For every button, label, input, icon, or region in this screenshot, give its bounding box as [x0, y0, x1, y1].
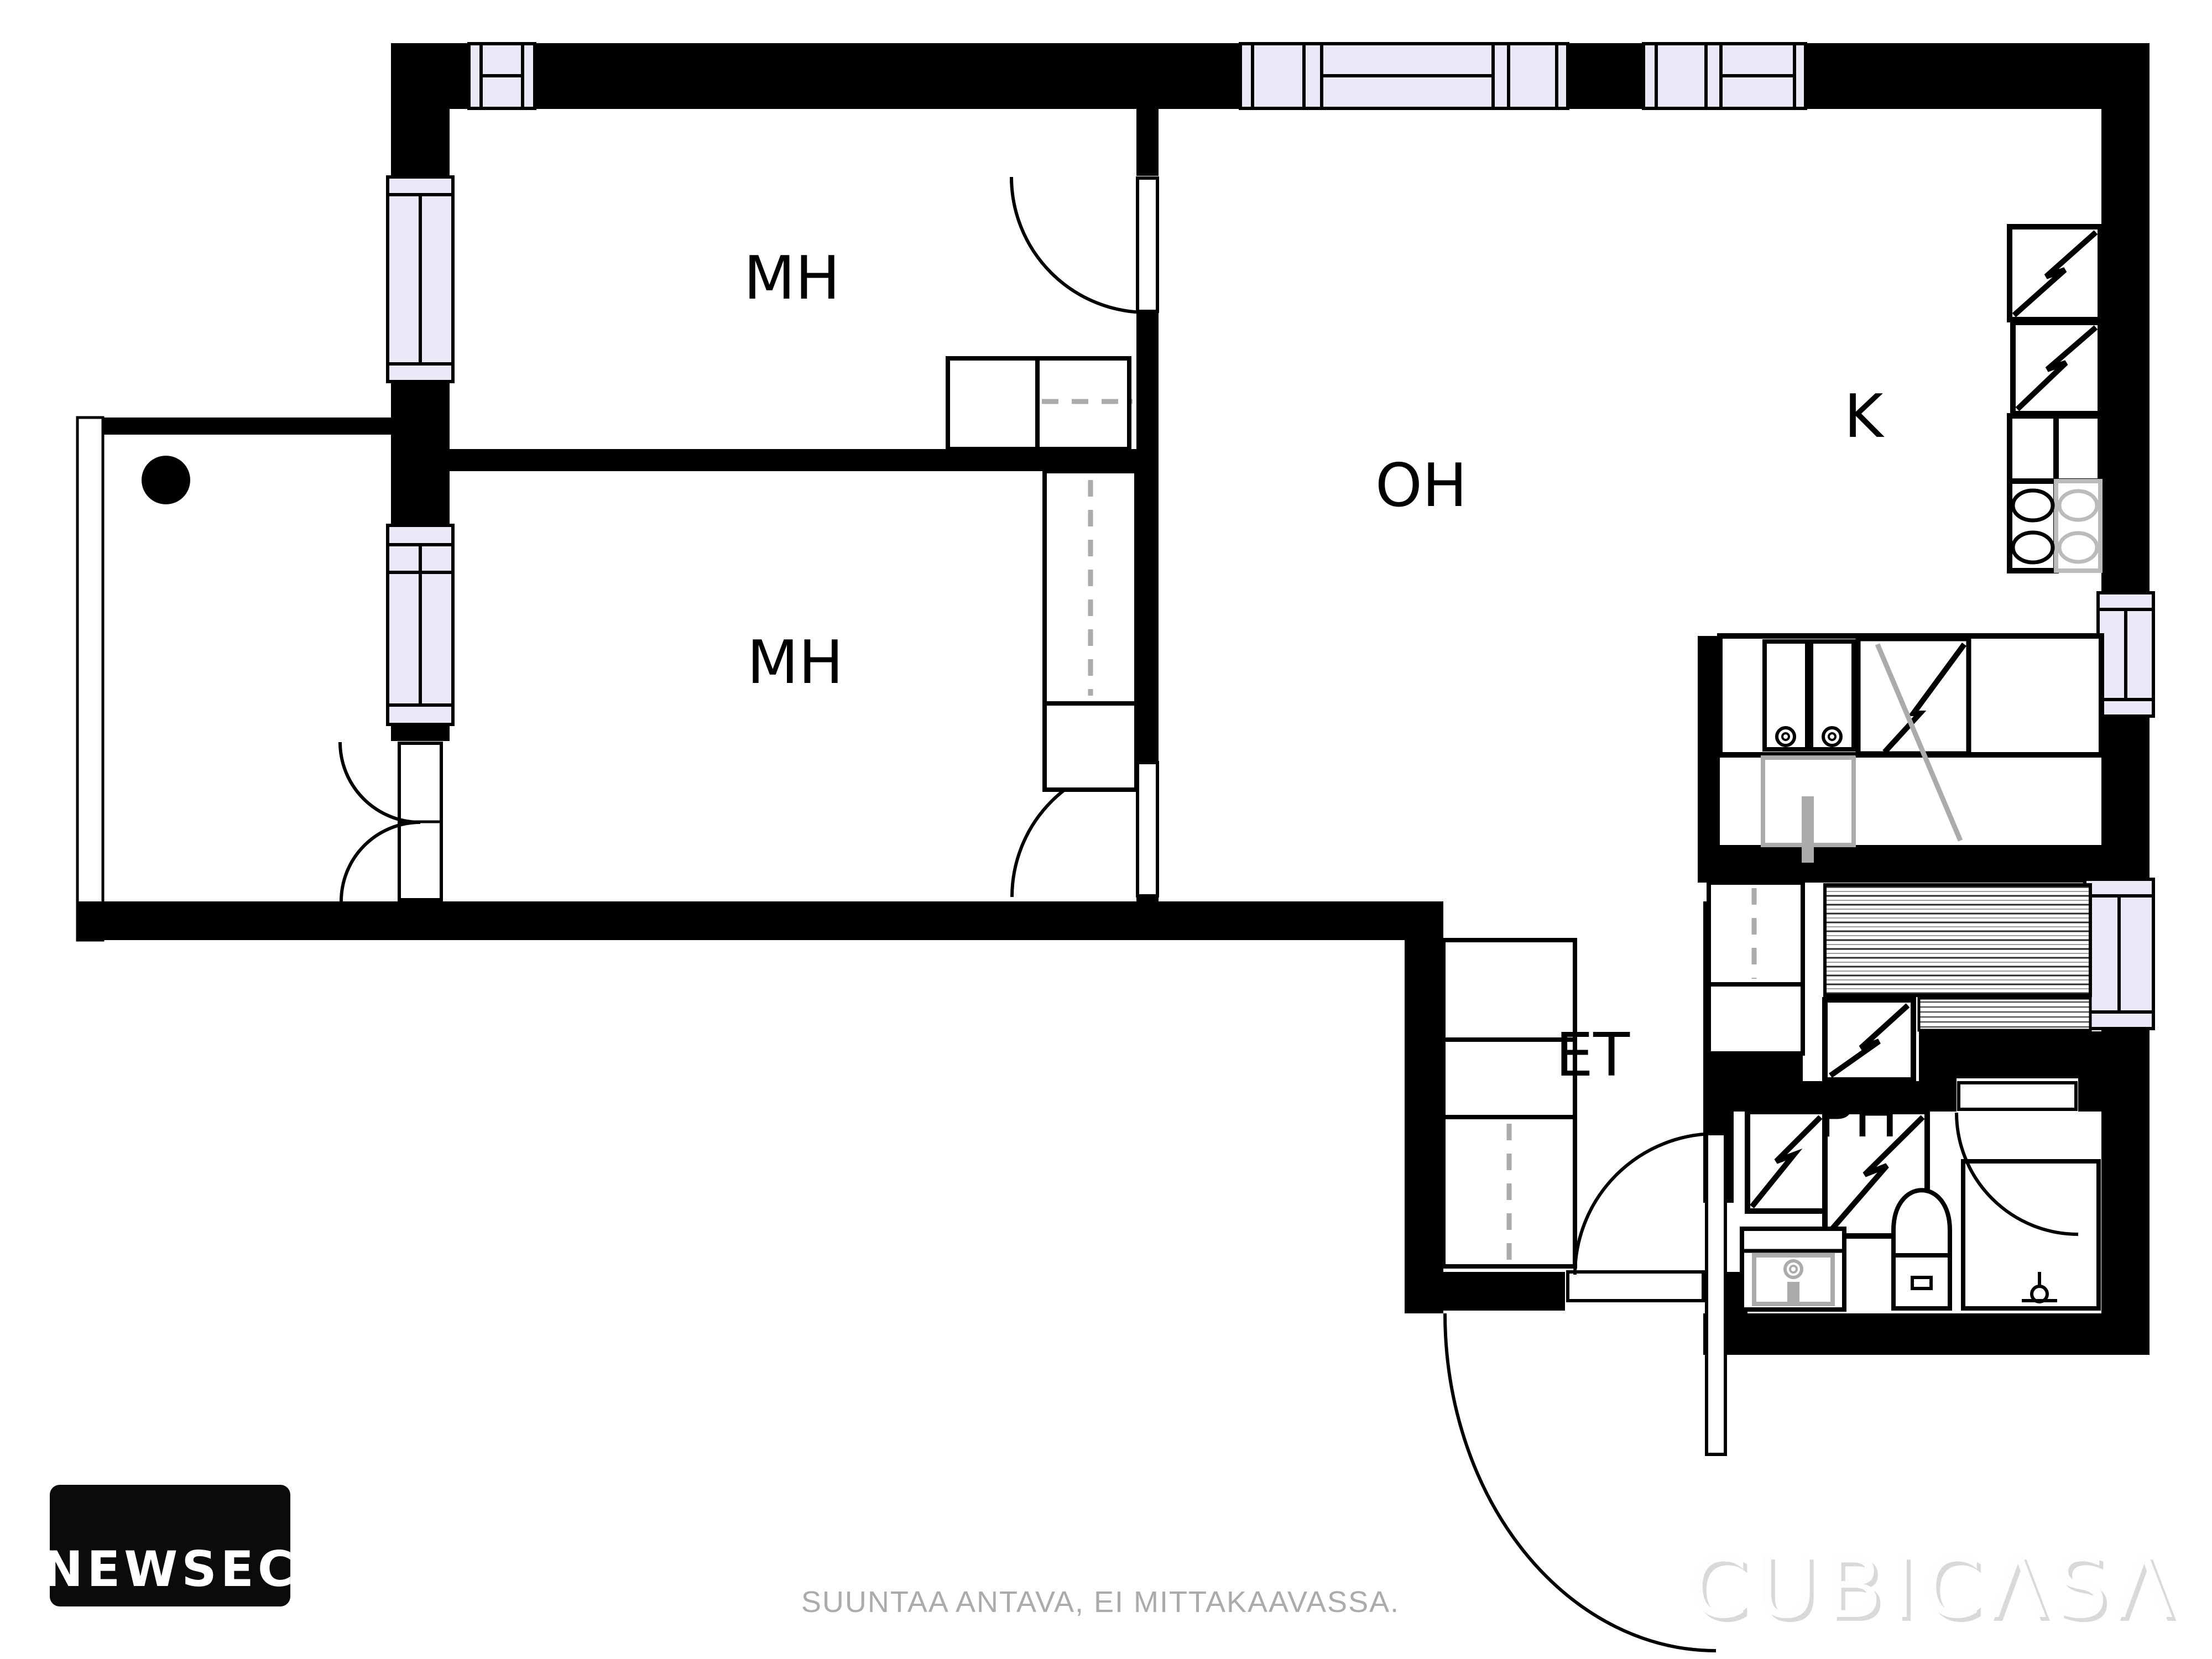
- wardrobe: [1045, 703, 1136, 790]
- wall-below-kitchen-counter: [1698, 845, 2101, 883]
- window-kitchen-top: [1644, 44, 1806, 108]
- door-leaf-open: [1707, 1134, 1725, 1454]
- disclaimer-text: SUUNTAA ANTAVA, EI MITTAKAAVASSA.: [801, 1585, 1400, 1619]
- wall-between-bedrooms: [450, 449, 1159, 471]
- window-bedroom2-left: [388, 525, 453, 724]
- floorplan-svg: MH MH OH K ET PH NEWSEC SUUNTAA ANTAVA, …: [0, 0, 2212, 1659]
- floorplan-page: MH MH OH K ET PH NEWSEC SUUNTAA ANTAVA, …: [0, 0, 2212, 1659]
- wall-bathroom-south: [1703, 1313, 2150, 1355]
- drying-rack-small: [1919, 998, 2090, 1030]
- window-bedroom1-left: [388, 177, 453, 382]
- wall-entry-west: [1405, 901, 1443, 1313]
- bathroom-sink: [1742, 1229, 1844, 1310]
- toilet: [1893, 1190, 1950, 1308]
- stove: [2010, 481, 2100, 571]
- room-label-bedroom-2: MH: [747, 628, 843, 697]
- window-bedroom1-top: [469, 44, 535, 108]
- cubicasa-watermark-text: CUBICΛSΛ: [1689, 1539, 2180, 1637]
- wall-south-bedrooms: [77, 901, 1443, 940]
- drying-rack: [1825, 885, 2090, 995]
- wardrobe: [948, 358, 1037, 449]
- room-label-bedroom-1: MH: [744, 244, 840, 313]
- door-leaf: [1568, 1272, 1703, 1301]
- kitchen-cabinet: [2056, 416, 2100, 481]
- window-kitchen-right: [2098, 593, 2153, 716]
- balcony-glass-rail: [77, 418, 103, 940]
- cubicasa-watermark: CUBICΛSΛ CUBICΛSΛ: [1689, 1539, 2184, 1641]
- window-utility-right: [2085, 879, 2153, 1029]
- room-label-living-room: OH: [1375, 451, 1467, 520]
- newsec-logo: NEWSEC: [43, 1485, 298, 1606]
- room-label-entry-hall: ET: [1556, 1021, 1630, 1090]
- room-label-bathroom: PH: [1818, 1082, 1898, 1151]
- floor-drain-icon: [142, 456, 190, 504]
- background: [0, 0, 2212, 1659]
- kitchen-cabinet: [2010, 416, 2056, 481]
- closet: [1709, 984, 1803, 1053]
- balcony-top-rail: [77, 418, 393, 435]
- door-leaf: [1959, 1083, 2076, 1109]
- wall-entry-south: [1405, 1272, 1568, 1311]
- door-leaf: [1138, 178, 1157, 311]
- window-living-top-large: [1240, 44, 1568, 108]
- room-label-kitchen: K: [1844, 382, 1885, 451]
- newsec-logo-text: NEWSEC: [43, 1541, 298, 1598]
- door-leaf: [1138, 763, 1157, 896]
- wall-utility-fill: [1919, 1031, 2101, 1084]
